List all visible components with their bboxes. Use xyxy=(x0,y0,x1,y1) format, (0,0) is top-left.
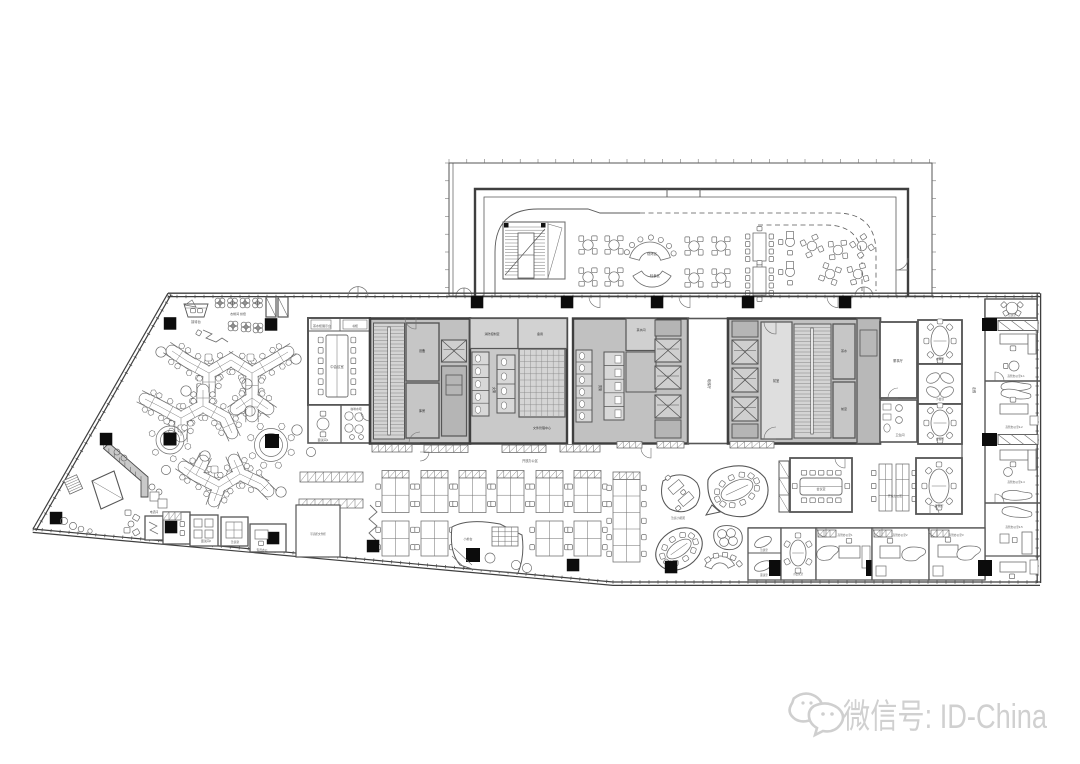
svg-text:书柜: 书柜 xyxy=(352,323,358,328)
svg-text:中会议室: 中会议室 xyxy=(330,364,344,369)
svg-text:内审厅: 内审厅 xyxy=(936,357,945,361)
svg-text:消防控制室: 消防控制室 xyxy=(484,331,499,336)
svg-text:开放办公区: 开放办公区 xyxy=(888,494,902,498)
svg-text:面试间1: 面试间1 xyxy=(318,437,329,442)
svg-text:轻食区: 轻食区 xyxy=(650,273,661,278)
svg-text:小会议: 小会议 xyxy=(936,397,945,401)
svg-text:洽谈小组团: 洽谈小组团 xyxy=(671,516,685,520)
svg-text:高管办公室2-5: 高管办公室2-5 xyxy=(1005,525,1023,529)
svg-text:专员办公: 专员办公 xyxy=(256,548,267,552)
svg-text:走廊: 走廊 xyxy=(972,387,977,394)
svg-text:高管办公室2: 高管办公室2 xyxy=(893,533,908,537)
svg-text:茶水: 茶水 xyxy=(841,348,847,353)
svg-text:电话间: 电话间 xyxy=(150,510,159,514)
svg-text:咖啡水吧: 咖啡水吧 xyxy=(350,407,361,411)
svg-text:茶水柜展示台: 茶水柜展示台 xyxy=(313,323,331,328)
svg-text:女厕: 女厕 xyxy=(492,387,497,393)
svg-text:高管办公室2-2: 高管办公室2-2 xyxy=(1005,425,1023,429)
svg-text:电梯厅: 电梯厅 xyxy=(707,379,712,390)
svg-text:会议室: 会议室 xyxy=(816,486,825,491)
svg-text:带高柜文件柜: 带高柜文件柜 xyxy=(310,532,326,536)
svg-text:接待台: 接待台 xyxy=(191,319,201,324)
svg-text:高管办公室1: 高管办公室1 xyxy=(838,533,853,537)
svg-text:面试室: 面试室 xyxy=(760,573,768,577)
svg-text:高管办公室2-4: 高管办公室2-4 xyxy=(1007,480,1025,484)
svg-text:文件管理中心: 文件管理中心 xyxy=(533,425,551,430)
svg-text:高管办公室2-1: 高管办公室2-1 xyxy=(1007,374,1025,378)
svg-text:男厕: 男厕 xyxy=(598,385,603,391)
svg-text:小前台: 小前台 xyxy=(463,536,472,541)
svg-text:微信号: ID-China: 微信号: ID-China xyxy=(843,698,1047,736)
svg-text:洽谈室: 洽谈室 xyxy=(1008,313,1016,317)
svg-text:烧烤区: 烧烤区 xyxy=(647,251,658,256)
svg-text:开放办公区: 开放办公区 xyxy=(522,458,539,463)
svg-text:董事厅: 董事厅 xyxy=(893,358,904,363)
svg-text:面试间2: 面试间2 xyxy=(201,539,211,543)
svg-text:会客厅: 会客厅 xyxy=(936,437,945,441)
svg-text:备用: 备用 xyxy=(537,331,543,336)
svg-text:洽谈室: 洽谈室 xyxy=(760,548,768,552)
svg-text:小会议室: 小会议室 xyxy=(793,572,804,576)
svg-text:库房: 库房 xyxy=(419,408,425,413)
svg-text:前室: 前室 xyxy=(841,406,847,411)
svg-text:设备: 设备 xyxy=(419,348,426,353)
svg-text:衣帽间 烘焙: 衣帽间 烘焙 xyxy=(230,311,246,316)
svg-text:洽谈室: 洽谈室 xyxy=(231,540,240,544)
svg-text:茶水间: 茶水间 xyxy=(636,327,645,332)
svg-text:高管办公室3: 高管办公室3 xyxy=(949,533,964,537)
svg-text:卫生间: 卫生间 xyxy=(895,432,904,437)
svg-text:前室: 前室 xyxy=(773,378,779,383)
